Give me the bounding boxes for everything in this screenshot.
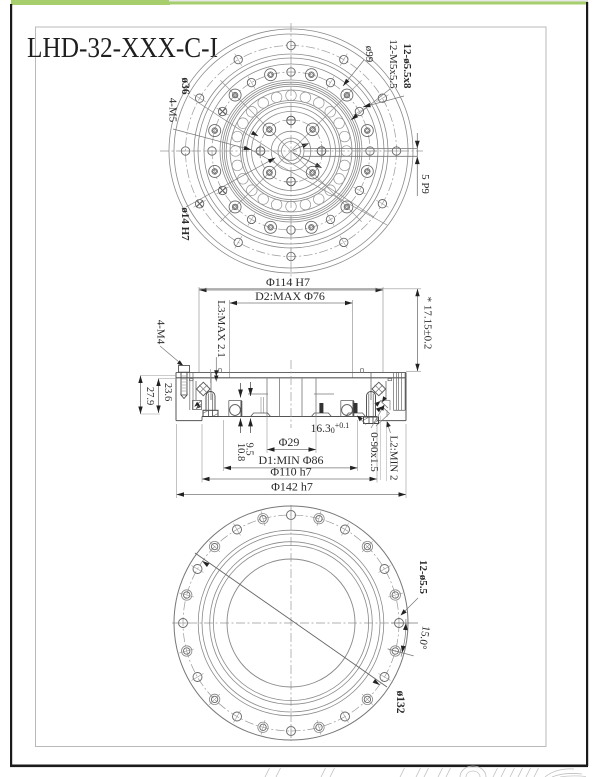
svg-text:12-M5x5.5: 12-M5x5.5: [387, 39, 399, 89]
svg-text:* 17.15±0.2: * 17.15±0.2: [422, 297, 434, 350]
svg-text:23.6: 23.6: [162, 383, 173, 401]
svg-text:0-90x1.5: 0-90x1.5: [368, 432, 380, 472]
svg-text:Φ29: Φ29: [279, 435, 300, 449]
svg-text:12-ø5.5: 12-ø5.5: [417, 560, 429, 594]
svg-text:4-M4: 4-M4: [155, 320, 167, 345]
svg-text:D2:MAX Φ76: D2:MAX Φ76: [255, 289, 325, 303]
svg-text:12-ø5.5x8: 12-ø5.5x8: [401, 44, 413, 89]
svg-text:Φ110 h7: Φ110 h7: [270, 465, 311, 479]
svg-text:Φ114 H7: Φ114 H7: [266, 275, 310, 289]
svg-text:ø14 H7: ø14 H7: [179, 207, 191, 241]
svg-text:L3:MAX 2.1: L3:MAX 2.1: [215, 300, 227, 357]
svg-text:LHD-32-XXX-C-I: LHD-32-XXX-C-I: [27, 32, 218, 64]
svg-text:ø99: ø99: [363, 46, 375, 63]
svg-text:ø36: ø36: [179, 77, 191, 95]
svg-text:4-M5: 4-M5: [167, 98, 179, 123]
svg-text:10.8: 10.8: [235, 443, 246, 461]
svg-text:L2:MIN 2: L2:MIN 2: [388, 436, 400, 481]
svg-text:ø132: ø132: [394, 691, 406, 714]
svg-text:Φ142 h7: Φ142 h7: [271, 480, 313, 494]
svg-text:5 P9: 5 P9: [419, 174, 431, 194]
svg-text:27.9: 27.9: [144, 387, 155, 405]
